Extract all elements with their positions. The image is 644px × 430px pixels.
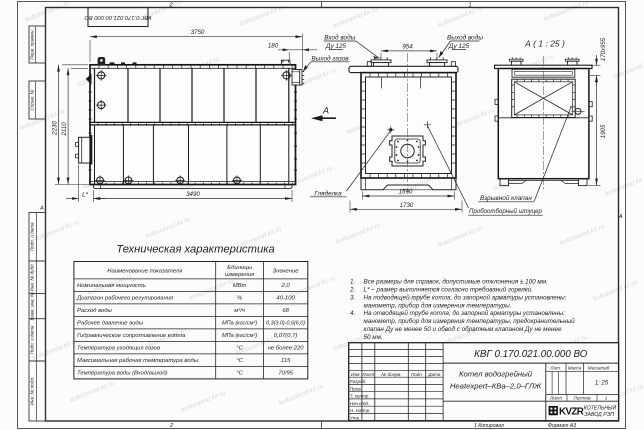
svg-text:115: 115 <box>281 358 291 364</box>
svg-text:Выход газов: Выход газов <box>311 54 349 62</box>
svg-text:Подп. и дата: Подп. и дата <box>30 325 35 354</box>
svg-text:1730: 1730 <box>400 202 414 209</box>
svg-text:Температура уходящих газов: Температура уходящих газов <box>77 346 160 352</box>
svg-text:2,0: 2,0 <box>280 283 290 289</box>
svg-text:3750: 3750 <box>191 29 205 36</box>
svg-text:4.: 4. <box>350 310 355 317</box>
svg-text:клапан Ду не менее 50 и обвод: клапан Ду не менее 50 и обвод с обратным… <box>364 325 562 333</box>
svg-text:170х955: 170х955 <box>601 37 607 61</box>
svg-text:Т. контр.: Т. контр. <box>350 394 370 399</box>
svg-text:180: 180 <box>268 43 279 50</box>
svg-text:Лит.: Лит. <box>549 365 561 370</box>
svg-text:Изм: Изм <box>351 372 360 377</box>
svg-text:Нач.отд.: Нач.отд. <box>350 401 369 406</box>
svg-text:Ду 125: Ду 125 <box>325 43 347 50</box>
svg-text:Наименование показателя: Наименование показателя <box>107 268 183 274</box>
svg-text:КВГ 0.170.021.00.000 ВО: КВГ 0.170.021.00.000 ВО <box>84 14 152 20</box>
svg-text:1.: 1. <box>350 279 355 286</box>
svg-text:1590: 1590 <box>399 189 413 196</box>
svg-text:Утв.: Утв. <box>350 415 360 420</box>
svg-text:954: 954 <box>402 43 413 50</box>
svg-text:Единицы: Единицы <box>227 265 252 271</box>
svg-text:40-100: 40-100 <box>276 296 295 302</box>
svg-text:ЗАВОД РЭП: ЗАВОД РЭП <box>584 412 614 418</box>
svg-text:А ( 1 : 25 ): А ( 1 : 25 ) <box>524 39 565 49</box>
svg-text:Все размеры для справок, допус: Все размеры для справок, допустимые откл… <box>364 278 548 286</box>
svg-text:Подп. и дата: Подп. и дата <box>30 222 35 251</box>
svg-text:Н. контр.: Н. контр. <box>350 408 371 413</box>
svg-text:2230: 2230 <box>51 121 58 136</box>
svg-text:Диапазон рабочего регулировани: Диапазон рабочего регулирования <box>76 296 174 302</box>
svg-text:Инв. № подл.: Инв. № подл. <box>30 377 35 406</box>
svg-text:Перв. примен.: Перв. примен. <box>29 29 34 60</box>
svg-text:Температура воды (Вход/выход): Температура воды (Вход/выход) <box>77 371 168 377</box>
svg-text:Пробоотборный штуцер: Пробоотборный штуцер <box>469 208 543 215</box>
svg-text:1: 1 <box>605 396 608 401</box>
svg-text:50 мм.: 50 мм. <box>364 334 383 341</box>
svg-text:А: А <box>618 214 623 220</box>
svg-text:Номинальная мощность: Номинальная мощность <box>77 283 146 289</box>
svg-text:Гляделка: Гляделка <box>314 189 342 197</box>
svg-text:1: 25: 1: 25 <box>595 380 609 386</box>
svg-text:1905: 1905 <box>600 124 607 138</box>
svg-text:Значение: Значение <box>273 268 300 274</box>
svg-text:МВт: МВт <box>233 283 247 289</box>
svg-text:2110: 2110 <box>61 122 68 137</box>
svg-text:Рабочее давление воды: Рабочее давление воды <box>77 321 144 327</box>
svg-text:68: 68 <box>282 308 289 314</box>
svg-text:Копировал: Копировал <box>478 423 504 429</box>
svg-text:Взрывной клапан: Взрывной клапан <box>480 194 532 202</box>
svg-text:На подводящей трубе котла, до: На подводящей трубе котла, до запорной а… <box>364 293 567 301</box>
svg-text:°С: °С <box>236 346 243 352</box>
svg-text:%: % <box>237 296 242 302</box>
svg-text:Листов: Листов <box>573 396 591 401</box>
svg-text:2: 2 <box>169 423 173 429</box>
svg-text:№ докум.: № докум. <box>381 372 401 377</box>
svg-text:°С: °С <box>236 358 243 364</box>
svg-text:1: 1 <box>468 2 471 8</box>
svg-text:Heatexpert–КВа–2,0–ГЛЖ: Heatexpert–КВа–2,0–ГЛЖ <box>450 382 542 391</box>
svg-text:измерения: измерения <box>225 272 255 278</box>
svg-text:Инв. № дубл.: Инв. № дубл. <box>30 263 35 291</box>
svg-text:0,07(0,7): 0,07(0,7) <box>274 333 298 339</box>
svg-text:2.: 2. <box>349 287 355 294</box>
svg-text:МПа (кгс/см²): МПа (кгс/см²) <box>222 321 257 327</box>
svg-text:Масса: Масса <box>568 365 582 370</box>
svg-text:Ду 125: Ду 125 <box>448 43 470 50</box>
svg-text:м³/ч: м³/ч <box>234 308 245 314</box>
svg-text:3.: 3. <box>350 294 355 301</box>
svg-text:Разраб.: Разраб. <box>350 379 367 384</box>
svg-text:Выход воды: Выход воды <box>447 34 483 42</box>
svg-text:Расход воды: Расход воды <box>77 308 113 314</box>
svg-text:А: А <box>322 106 329 116</box>
svg-text:KVZR: KVZR <box>559 407 584 418</box>
svg-text:На отводящей трубе котла, до з: На отводящей трубе котла, до запорной ар… <box>364 309 566 317</box>
svg-text:0,3(3,0)-0,6(6,0): 0,3(3,0)-0,6(6,0) <box>266 321 305 327</box>
svg-text:А: А <box>39 206 44 212</box>
svg-text:Подп.: Подп. <box>411 372 423 377</box>
svg-text:3490: 3490 <box>186 191 200 198</box>
svg-text:Техническая характеристика: Техническая характеристика <box>116 244 274 256</box>
svg-text:Масштаб: Масштаб <box>588 365 610 370</box>
svg-text:Вход воды: Вход воды <box>324 34 355 42</box>
svg-text:Дата: Дата <box>427 372 441 377</box>
svg-text:манометр, прибор для измерения: манометр, прибор для измерения температу… <box>364 317 576 325</box>
svg-text:Пров.: Пров. <box>350 386 362 391</box>
svg-text:Котел водогрейный: Котел водогрейный <box>459 370 533 379</box>
svg-text:Взам. инв. №: Взам. инв. № <box>30 292 35 320</box>
svg-text:70/95: 70/95 <box>278 371 293 377</box>
svg-text:Лист: Лист <box>361 372 374 377</box>
svg-text:L* – размер выполняется соглас: L* – размер выполняется согласно требова… <box>364 286 534 294</box>
svg-text:L*: L* <box>82 191 88 198</box>
svg-text:манометр, прибор для измерения: манометр, прибор для измерения температу… <box>364 301 512 309</box>
svg-text:КВГ 0.170.021.00.000 ВО: КВГ 0.170.021.00.000 ВО <box>474 349 588 360</box>
svg-text:1: 1 <box>474 423 477 429</box>
svg-text:не более 220: не более 220 <box>268 346 305 352</box>
svg-text:°С: °С <box>236 371 243 377</box>
svg-text:Справ. №: Справ. № <box>29 90 34 111</box>
svg-text:2: 2 <box>168 2 172 8</box>
svg-text:Гидравлическое сопротивление к: Гидравлическое сопротивление котла <box>77 333 186 339</box>
svg-text:Максимальная рабочая температу: Максимальная рабочая температура воды <box>77 358 199 364</box>
svg-text:Формат А3: Формат А3 <box>548 423 576 429</box>
svg-text:КОТЕЛЬНЫЙ: КОТЕЛЬНЫЙ <box>584 403 617 411</box>
svg-text:МПа (кгс/см²): МПа (кгс/см²) <box>222 333 257 339</box>
svg-text:Лист: Лист <box>549 396 562 401</box>
